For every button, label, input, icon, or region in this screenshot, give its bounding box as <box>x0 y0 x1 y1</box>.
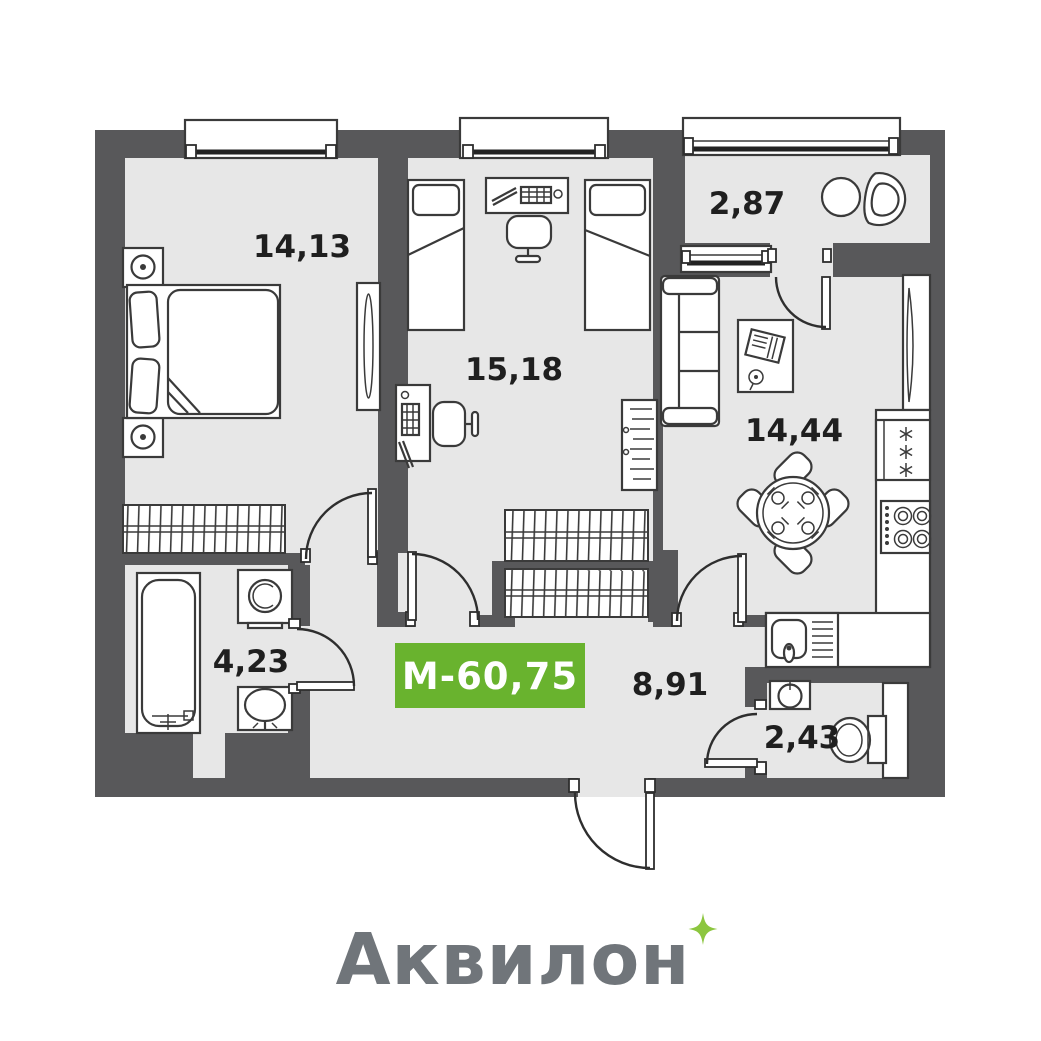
wardrobe-icon <box>123 505 285 553</box>
badge-label: М-60,75 <box>402 655 578 698</box>
double-bed-icon <box>127 285 280 418</box>
washing-machine-icon <box>238 570 292 628</box>
kitchen-area-label: 14,44 <box>745 413 843 449</box>
desk-chair-icon <box>433 402 465 446</box>
toilet-area-label: 2,43 <box>764 720 841 756</box>
kitchen-sink-icon <box>766 613 838 667</box>
bathroom-niche <box>193 733 225 778</box>
developer-logo: Аквилон <box>336 913 718 1001</box>
drying-rack-icon <box>622 400 657 490</box>
coffee-table-icon <box>738 320 793 392</box>
single-bed-icon <box>408 180 464 330</box>
stove-icon <box>881 501 931 553</box>
fridge-icon <box>876 420 930 480</box>
children-room-area-label: 15,18 <box>465 352 563 388</box>
loggia-window-icon <box>683 118 900 155</box>
bathtub-icon <box>137 573 200 733</box>
bedroom-area-label: 14,13 <box>253 229 351 265</box>
logo-sparkle-icon <box>689 913 718 945</box>
mirror-icon <box>357 283 380 410</box>
desk-chair-icon <box>507 216 551 248</box>
washbasin-icon <box>238 687 292 730</box>
worktop-icon <box>903 275 930 410</box>
small-washbasin-icon <box>770 681 810 709</box>
bedroom-window-icon <box>185 120 337 158</box>
sofa-icon <box>661 276 719 426</box>
loggia-area-label: 2,87 <box>709 186 786 222</box>
children-room-window-icon <box>460 118 608 158</box>
hallway-wardrobe-icon <box>505 569 648 617</box>
wardrobe-icon <box>505 510 648 561</box>
hallway-area-label: 8,91 <box>632 667 709 703</box>
nightstand-lamp-icon <box>123 418 163 457</box>
nightstand-lamp-icon <box>123 248 163 287</box>
single-bed-icon <box>585 180 650 330</box>
total-area-badge: М-60,75 <box>395 643 585 708</box>
bathroom-area-label: 4,23 <box>213 644 290 680</box>
logo-text: Аквилон <box>336 918 691 1001</box>
round-table-icon <box>822 178 860 216</box>
floor-plan: 14,13 15,18 2,87 14,44 4,23 8,91 2,43 М-… <box>0 0 1041 1041</box>
kitchen-loggia-window-icon <box>681 246 771 272</box>
